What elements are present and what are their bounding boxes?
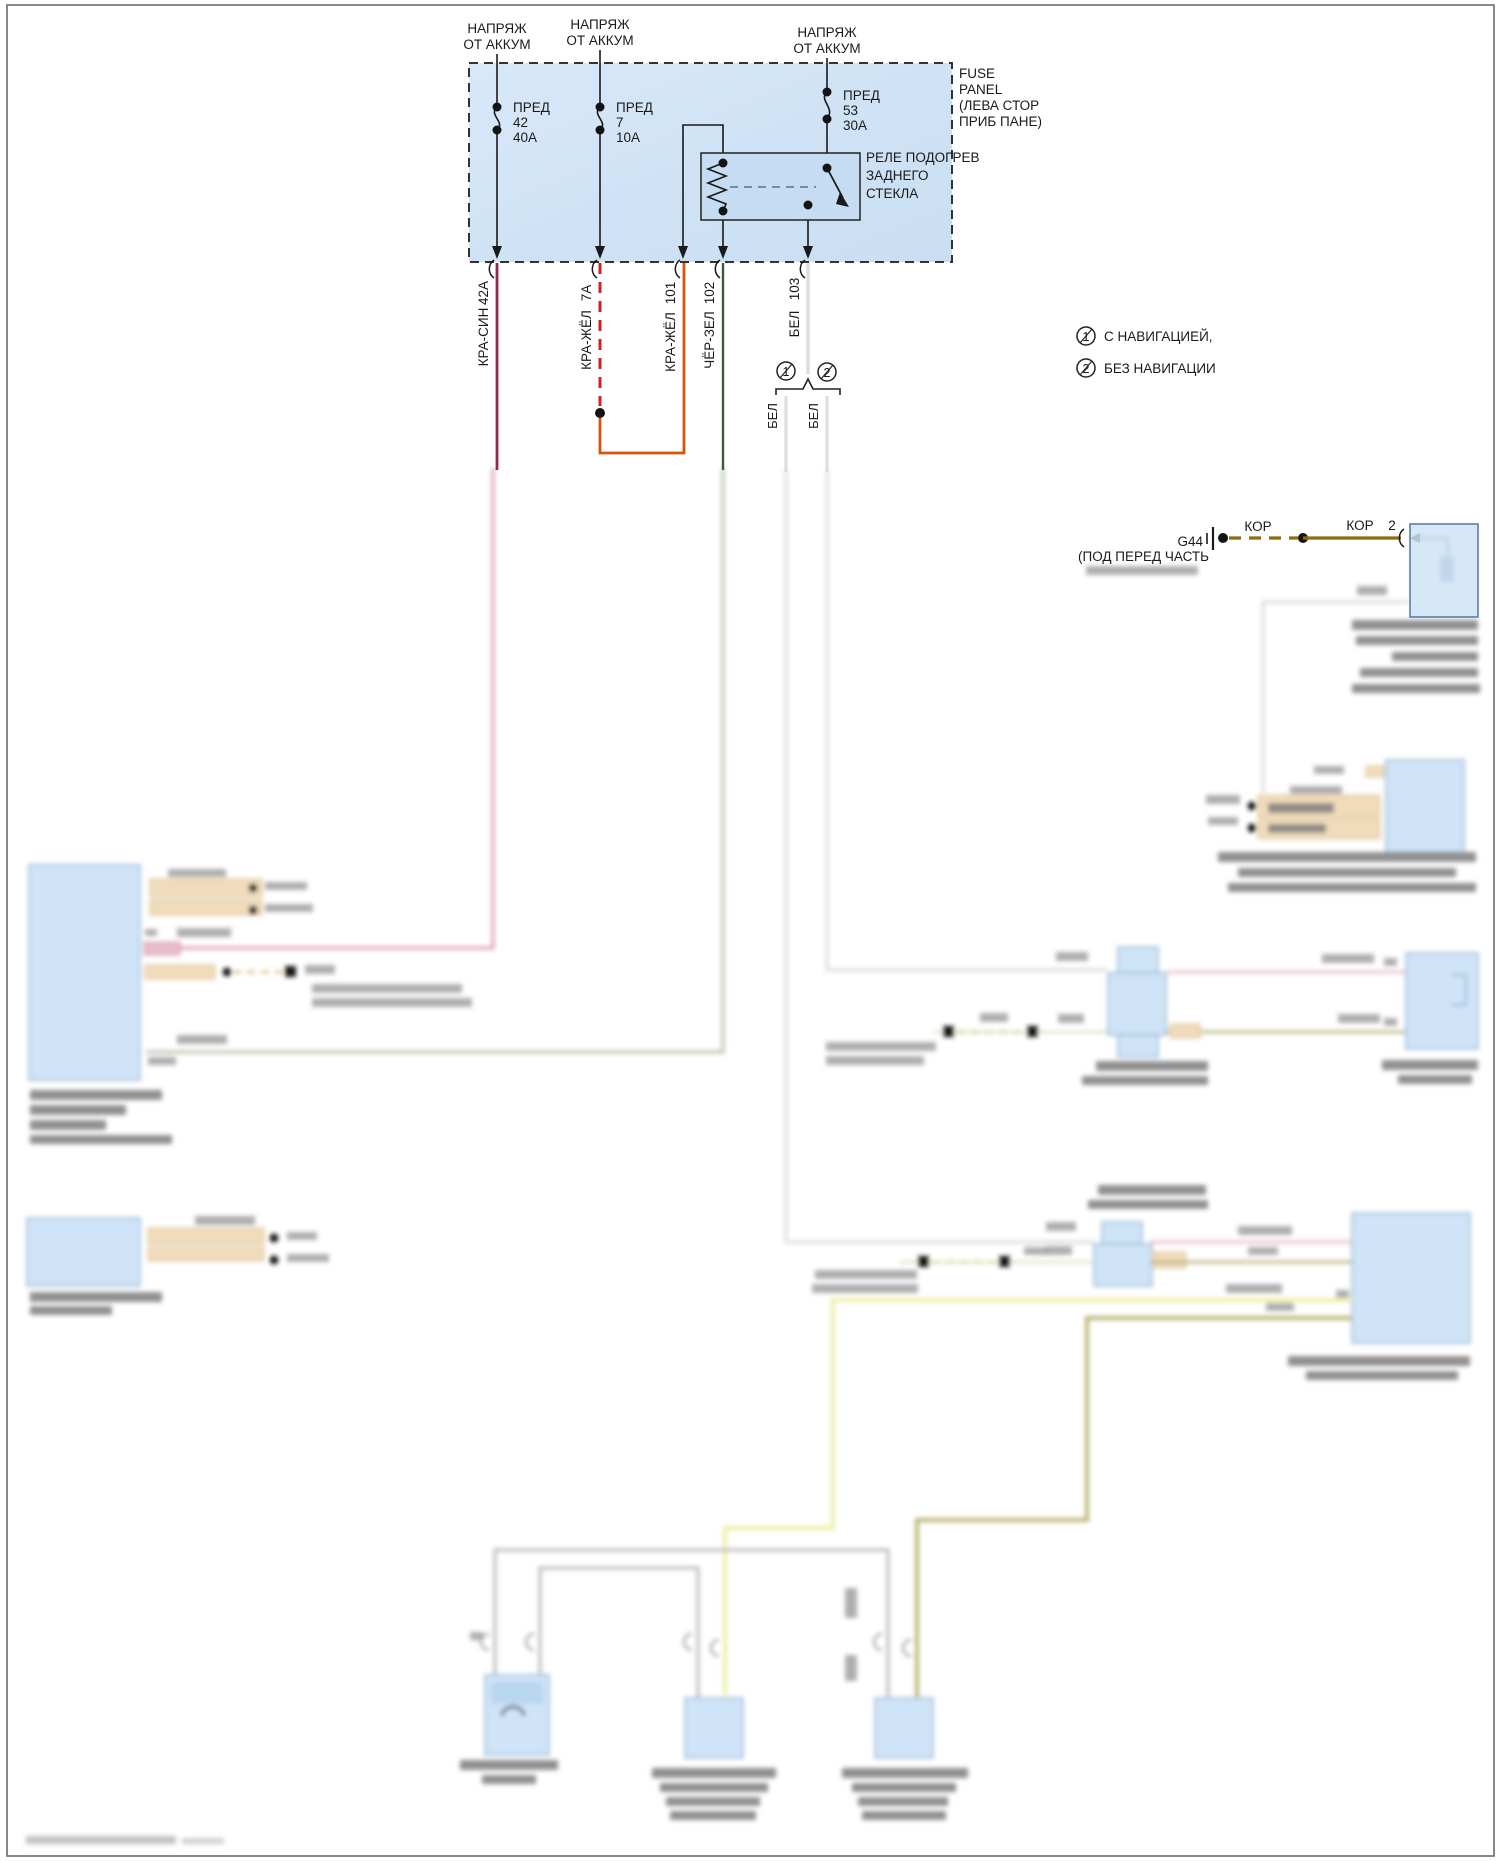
feed-label: НАПРЯЖ — [797, 25, 857, 40]
blurred-text — [1088, 1200, 1208, 1209]
fuse-label: 7 — [616, 115, 624, 130]
splice-dot — [249, 906, 258, 915]
splice-dot — [1248, 802, 1257, 811]
blurred-text — [826, 1042, 936, 1051]
blurred-text — [1046, 1246, 1072, 1255]
blurred-region — [26, 468, 1480, 1844]
blurred-text — [852, 1783, 956, 1792]
blurred-text — [670, 1811, 756, 1820]
fuse-label: ПРЕД — [843, 88, 880, 103]
connector-tan — [148, 1228, 264, 1244]
component-box-right-upper — [1386, 760, 1464, 852]
note-2: 2 БЕЗ НАВИГАЦИИ — [1077, 359, 1216, 377]
blurred-text — [1398, 1075, 1472, 1084]
connector-stack-2 — [1102, 1222, 1142, 1244]
feed-label: НАПРЯЖ — [467, 21, 527, 36]
blurred-text — [1098, 1185, 1206, 1195]
box-inner-band — [491, 1682, 543, 1704]
splice-square — [285, 966, 296, 977]
blurred-text — [862, 1811, 946, 1820]
blurred-text — [195, 1216, 255, 1225]
feed-label: ОТ АККУМ — [566, 33, 633, 48]
relay-pin — [823, 164, 832, 173]
blurred-text — [470, 1632, 483, 1640]
relay-label: РЕЛЕ ПОДОГРЕВ — [866, 150, 980, 165]
blurred-text — [145, 929, 157, 936]
diagram-svg: НАПРЯЖ ОТ АККУМ НАПРЯЖ ОТ АККУМ НАПРЯЖ О… — [0, 0, 1500, 1861]
blurred-text — [1356, 636, 1478, 645]
note-1-text: С НАВИГАЦИЕЙ, — [1104, 329, 1213, 344]
blurred-text — [842, 1768, 968, 1778]
blurred-text — [1268, 803, 1334, 813]
connector-tan — [148, 1247, 264, 1261]
feed-label: ОТ АККУМ — [463, 37, 530, 52]
splice-dot — [270, 1256, 279, 1265]
connector-box-top-right — [1410, 524, 1478, 617]
connector-stack-1 — [1108, 973, 1166, 1035]
blurred-text — [845, 1588, 857, 1618]
blurred-text — [1086, 566, 1198, 575]
blurred-text — [287, 1254, 329, 1262]
svg-text:2: 2 — [1083, 362, 1090, 376]
wire-kor-label-2: КОР — [1346, 518, 1373, 533]
blurred-text — [265, 882, 307, 890]
blurred-text — [312, 998, 472, 1007]
blurred-text — [1238, 1226, 1292, 1235]
blurred-text — [1352, 620, 1478, 630]
panel-name: ПРИБ ПАНЕ) — [959, 114, 1042, 129]
splice-dot — [249, 884, 258, 893]
feed-label: НАПРЯЖ — [570, 17, 630, 32]
blurred-text — [1384, 958, 1397, 966]
blurred-text — [265, 904, 313, 912]
wire-gray-run-1 — [495, 1550, 888, 1700]
svg-text:КРА-ЖЁЛ: КРА-ЖЁЛ — [663, 312, 678, 372]
bottom-box-right — [875, 1698, 933, 1758]
wiring-diagram-page: НАПРЯЖ ОТ АККУМ НАПРЯЖ ОТ АККУМ НАПРЯЖ О… — [0, 0, 1500, 1861]
fuse-label: 10А — [616, 130, 640, 145]
component-box-big — [1352, 1213, 1470, 1343]
blurred-text — [1288, 1356, 1470, 1366]
blurred-text — [148, 1057, 176, 1065]
ground-location: (ПОД ПЕРЕД ЧАСТЬ — [1078, 549, 1209, 564]
component-box-right-mid — [1406, 953, 1478, 1049]
blurred-text — [1306, 1371, 1458, 1380]
blurred-text — [815, 1270, 917, 1279]
connector-tan — [1152, 1252, 1186, 1268]
splice-dot — [270, 1234, 279, 1243]
blurred-text — [1024, 1247, 1048, 1255]
blurred-text — [1322, 954, 1374, 963]
connector-pin-number: 2 — [1388, 518, 1396, 533]
splice-square — [918, 1256, 929, 1267]
blurred-text — [1352, 684, 1480, 693]
splice-dot — [223, 968, 232, 977]
blurred-text — [1314, 766, 1344, 774]
watermark — [26, 1836, 176, 1844]
branch-wire-label: БЕЛ — [806, 403, 821, 429]
relay-pin — [719, 207, 728, 216]
blurred-text — [1268, 824, 1326, 833]
blurred-text — [1082, 1076, 1208, 1085]
svg-text:КРА-ЖЁЛ: КРА-ЖЁЛ — [579, 310, 594, 370]
blurred-text — [30, 1306, 112, 1315]
blurred-text — [482, 1775, 536, 1784]
blurred-text — [660, 1783, 768, 1792]
module-box-left-2 — [27, 1218, 140, 1286]
branch-brace — [776, 379, 840, 395]
connector-pink — [144, 942, 180, 955]
svg-text:1: 1 — [1083, 330, 1090, 344]
blurred-text — [1238, 868, 1456, 877]
blurred-text — [1226, 1284, 1282, 1293]
blurred-text — [1266, 1303, 1294, 1311]
note-1: 1 С НАВИГАЦИЕЙ, — [1077, 327, 1213, 345]
svg-text:7А: 7А — [579, 285, 594, 302]
relay-label: ЗАДНЕГО — [866, 168, 929, 183]
connector-stack-1 — [1118, 947, 1158, 973]
svg-text:102: 102 — [702, 282, 717, 305]
feed-label: ОТ АККУМ — [793, 41, 860, 56]
splice-square — [943, 1026, 954, 1037]
wire-kor-label-1: КОР — [1244, 519, 1271, 534]
blurred-text — [858, 1797, 948, 1806]
relay-pin — [719, 159, 728, 168]
fuse-label: ПРЕД — [616, 100, 653, 115]
fuse-label: ПРЕД — [513, 100, 550, 115]
relay-pin — [804, 201, 813, 210]
fuse-label: 53 — [843, 103, 858, 118]
svg-text:101: 101 — [663, 282, 678, 305]
connector-tan — [1366, 766, 1384, 777]
watermark — [182, 1838, 224, 1844]
connector-arc — [1399, 529, 1404, 547]
blurred-text — [1382, 1060, 1478, 1070]
ground-id: G44 — [1177, 534, 1203, 549]
wire-bel-2-run — [827, 470, 1108, 970]
blurred-text — [1058, 1014, 1084, 1023]
panel-name: FUSE — [959, 66, 995, 81]
branch-1-marker: 1 — [777, 362, 795, 380]
blurred-text — [1046, 1222, 1076, 1231]
fuse-label: 42 — [513, 115, 528, 130]
wire-yellow-run — [725, 1300, 1352, 1695]
blurred-text — [177, 928, 231, 937]
blurred-text — [1096, 1061, 1208, 1071]
blurred-text — [980, 1013, 1008, 1022]
connector-tan — [150, 900, 262, 915]
wire-gray-run-2 — [540, 1568, 698, 1700]
blurred-text — [1357, 586, 1387, 595]
panel-name: PANEL — [959, 82, 1003, 97]
wire-cher-zel-run — [146, 468, 723, 1052]
blurred-text — [1206, 795, 1240, 804]
blurred-text — [177, 1035, 227, 1044]
blurred-text — [30, 1105, 126, 1115]
blurred-text — [652, 1768, 776, 1778]
blurred-text — [305, 965, 335, 974]
connector-stack-1 — [1118, 1035, 1158, 1057]
blurred-text — [287, 1232, 317, 1240]
connector-tan — [150, 879, 262, 897]
splice-dot — [1248, 824, 1257, 833]
inline-connectors — [481, 1634, 911, 1656]
blurred-text — [312, 984, 462, 993]
blurred-text — [1056, 952, 1088, 961]
blurred-text — [1248, 1247, 1278, 1255]
note-2-text: БЕЗ НАВИГАЦИИ — [1104, 361, 1216, 376]
panel-name: (ЛЕВА СТОР — [959, 98, 1039, 113]
relay-label: СТЕКЛА — [866, 186, 918, 201]
blurred-text — [666, 1797, 760, 1806]
blurred-text — [1218, 852, 1476, 862]
wire-labels: 42А КРА-СИН 7А КРА-ЖЁЛ 101 КРА-ЖЁЛ 102 Ч… — [476, 278, 802, 372]
svg-text:БЕЛ: БЕЛ — [787, 311, 802, 338]
ground-symbol — [1207, 527, 1228, 550]
blurred-text — [30, 1135, 172, 1144]
blurred-text — [1360, 668, 1478, 677]
branch-2-marker: 2 — [818, 363, 836, 381]
blurred-text — [460, 1760, 558, 1770]
connector-tan — [1170, 1024, 1200, 1038]
svg-text:42А: 42А — [476, 281, 491, 305]
junction-dot — [595, 408, 605, 418]
svg-text:103: 103 — [787, 278, 802, 301]
branch-wire-label: БЕЛ — [765, 403, 780, 429]
blurred-text — [1336, 1290, 1349, 1298]
bottom-box-middle — [685, 1698, 743, 1758]
blurred-text — [30, 1090, 162, 1100]
blurred-text — [1228, 883, 1476, 892]
blurred-text — [1208, 817, 1238, 825]
wire-khaki-run — [917, 1318, 1352, 1700]
svg-text:КРА-СИН: КРА-СИН — [476, 308, 491, 367]
blurred-text — [30, 1120, 106, 1130]
splice-square — [999, 1256, 1010, 1267]
blurred-text — [1392, 652, 1478, 661]
blurred-text — [30, 1292, 162, 1302]
connector-tan — [145, 965, 215, 979]
fuse-label: 40А — [513, 130, 537, 145]
blurred-text — [1290, 786, 1342, 794]
svg-text:1: 1 — [783, 365, 790, 379]
svg-text:2: 2 — [824, 366, 831, 380]
svg-text:ЧЁР-ЗЕЛ: ЧЁР-ЗЕЛ — [702, 311, 717, 369]
splice-square — [1027, 1026, 1038, 1037]
blurred-text — [826, 1056, 924, 1065]
module-box-left — [29, 865, 140, 1080]
connector-stack-2 — [1094, 1244, 1152, 1286]
blurred-text — [168, 869, 226, 877]
blurred-text — [1384, 1018, 1397, 1026]
wire-bel-1-run — [786, 470, 1094, 1242]
blurred-text — [812, 1284, 918, 1293]
blurred-text — [1338, 1014, 1380, 1023]
fuse-label: 30А — [843, 118, 867, 133]
blurred-text — [845, 1655, 857, 1681]
